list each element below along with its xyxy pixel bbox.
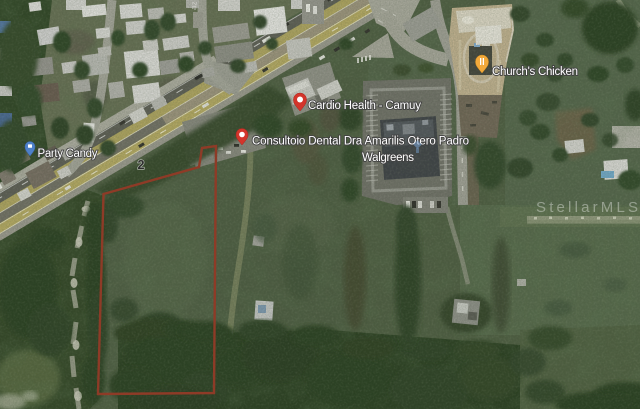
svg-text:Party Candy: Party Candy	[38, 148, 98, 160]
svg-text:Cardio Health - Camuy: Cardio Health - Camuy	[308, 100, 421, 112]
svg-text:Walgreens: Walgreens	[362, 152, 414, 164]
svg-text:StellarMLS: StellarMLS	[536, 199, 638, 216]
svg-text:Church's Chicken: Church's Chicken	[492, 66, 578, 78]
svg-text:2: 2	[138, 158, 145, 172]
svg-text:az: az	[189, 1, 199, 10]
svg-text:Consultoio Dental Dra Amarilis: Consultoio Dental Dra Amarilis Otero Pad…	[252, 136, 469, 148]
